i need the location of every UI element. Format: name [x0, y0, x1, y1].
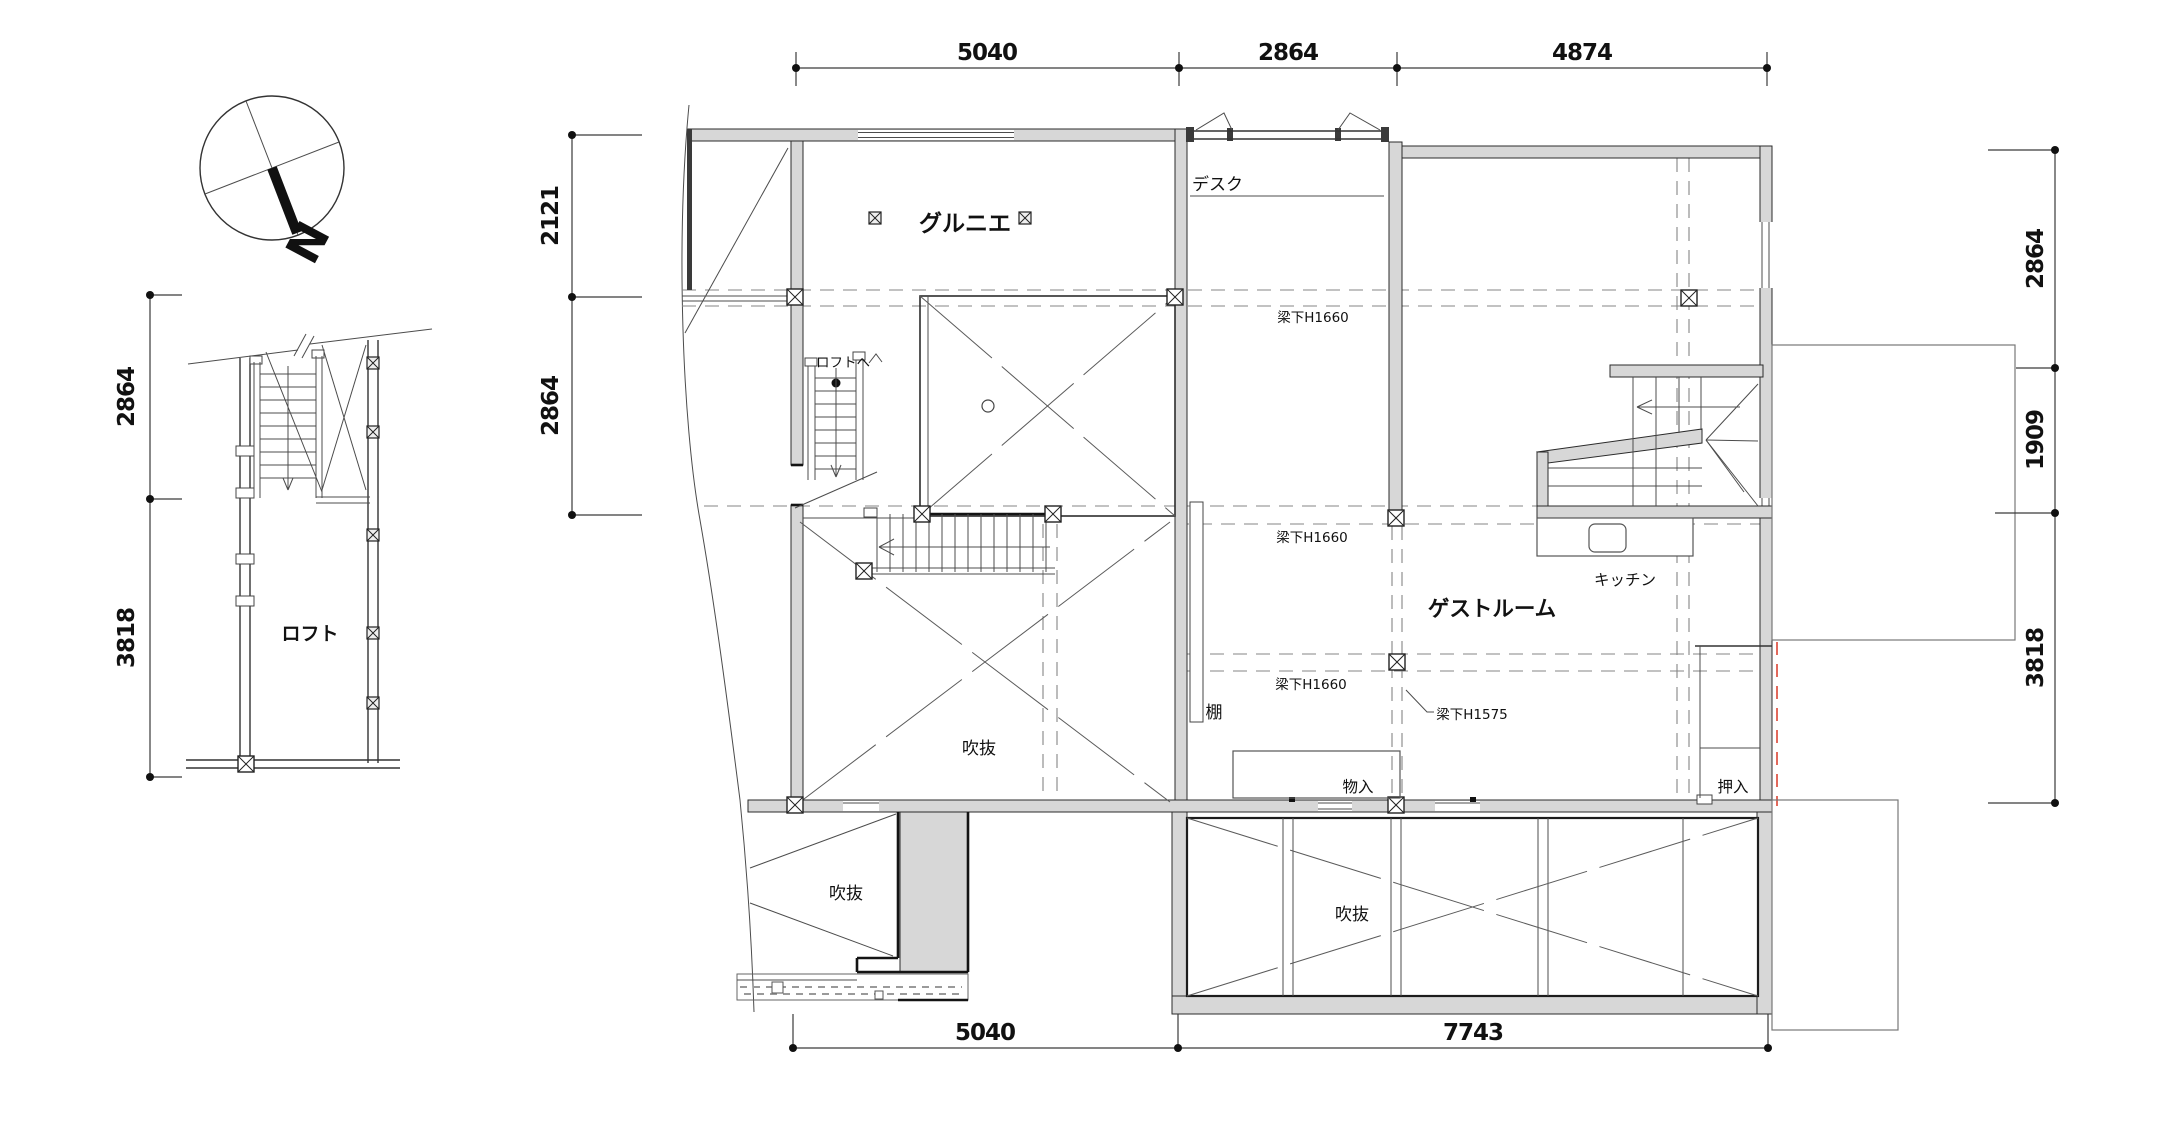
shelf	[1190, 502, 1203, 722]
side-plan-right-wall	[367, 340, 379, 763]
lower-roof-bottom-right	[1772, 800, 1898, 1030]
grenier-stairwell	[920, 296, 1175, 516]
label-storage: 物入	[1342, 778, 1373, 796]
label-shelf: 棚	[1206, 703, 1223, 723]
compass-rose: N	[200, 96, 344, 272]
beam-note-2: 梁下H1660	[1276, 530, 1348, 546]
beam-note-3: 梁下H1660	[1275, 677, 1347, 693]
dim-top-2: 2864	[1258, 40, 1318, 66]
dim-bottom-2: 7743	[1443, 1020, 1503, 1046]
side-plan: 2864 3818	[114, 291, 432, 781]
storage-box	[1233, 751, 1400, 798]
dim-bottom: 5040 7743	[789, 1014, 1772, 1052]
canopy-hatch	[737, 974, 968, 1000]
side-dim-lower: 3818	[114, 608, 140, 668]
side-plan-stair	[250, 345, 370, 503]
floor-plan-drawing: N 2864 3818	[0, 0, 2177, 1125]
dim-top: 5040 2864 4874	[792, 40, 1771, 86]
dim-top-3: 4874	[1552, 40, 1612, 66]
dim-right: 2864 1909 3818	[1988, 146, 2059, 807]
beam-note-leader	[1406, 690, 1434, 712]
void-label-bottom-center: 吹抜	[1335, 905, 1369, 925]
room-label-grenier: グルニエ	[919, 210, 1011, 237]
beam-note-4: 梁下H1575	[1436, 707, 1508, 723]
side-plan-dimensions: 2864 3818	[114, 291, 182, 781]
floor-plan-page: N 2864 3818	[0, 0, 2177, 1125]
main-plan: 5040 2864 4874 2121 2864 2864 19	[538, 40, 2059, 1052]
curved-boundary-line	[682, 105, 754, 1012]
label-to-loft: ロフトへ	[816, 355, 870, 371]
beam-dashed-verticals	[1043, 158, 1689, 800]
dim-left-2: 2864	[538, 376, 564, 436]
dim-right-1: 2864	[2023, 229, 2049, 289]
dim-bottom-1: 5040	[955, 1020, 1015, 1046]
room-label-loft: ロフト	[281, 623, 338, 645]
dim-top-1: 5040	[957, 40, 1017, 66]
room-label-desk: デスク	[1192, 174, 1243, 195]
beam-dashed-lines	[682, 290, 1760, 671]
bottom-center-void	[1172, 812, 1772, 1014]
label-closet: 押入	[1717, 778, 1748, 796]
room-label-guest: ゲストルーム	[1428, 597, 1556, 622]
dim-left-1: 2121	[538, 186, 564, 246]
side-plan-left-wall	[236, 358, 254, 763]
dim-right-2: 1909	[2023, 410, 2049, 470]
lower-roof-right	[1772, 345, 2015, 640]
right-stair	[1537, 365, 1772, 518]
room-label-kitchen: キッチン	[1594, 571, 1656, 589]
void-label-middle: 吹抜	[962, 739, 996, 759]
dim-left: 2121 2864	[538, 131, 642, 519]
main-stair	[856, 506, 1061, 579]
desk-window	[1186, 113, 1389, 142]
walls	[687, 113, 1777, 812]
void-label-bottom-left: 吹抜	[829, 884, 863, 904]
kitchen-counter	[1537, 518, 1693, 556]
dim-right-3: 3818	[2023, 628, 2049, 688]
beam-note-1: 梁下H1660	[1277, 310, 1349, 326]
loft-ladder	[805, 352, 882, 480]
side-dim-upper: 2864	[114, 367, 140, 427]
compass-north-label: N	[275, 213, 341, 272]
